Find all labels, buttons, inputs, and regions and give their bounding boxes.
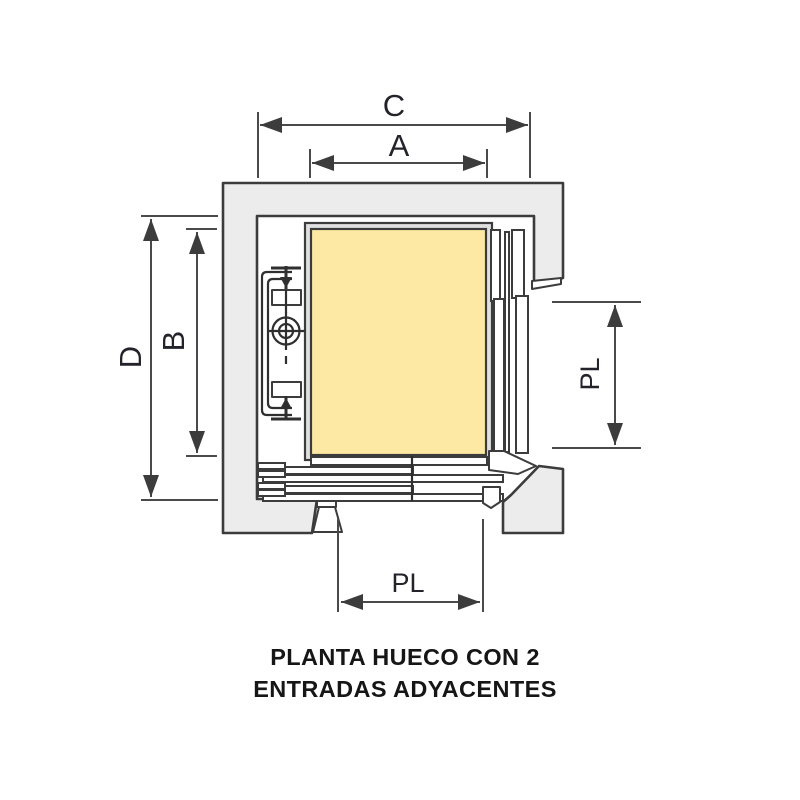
dimension-d: D [113, 216, 218, 500]
cabin-door-sill [311, 457, 487, 465]
dimension-a-label: A [389, 128, 410, 163]
arrowhead-down-icon [189, 431, 205, 453]
door-panel [516, 296, 528, 453]
door-jamb-top-right [532, 278, 561, 289]
guide-rail-assembly [262, 266, 305, 420]
rail-top-head [280, 277, 292, 288]
arrowhead-right-icon [506, 117, 528, 133]
arrowhead-up-icon [189, 232, 205, 254]
arrowhead-left-icon [341, 594, 363, 610]
dimension-c-label: C [383, 88, 405, 123]
bottom-entrance-door [258, 456, 503, 501]
door-panel [263, 494, 503, 501]
door-jamb-corner-b [483, 487, 500, 508]
door-operator-bar [258, 471, 285, 477]
dimension-pl-right: PL [552, 302, 641, 448]
arrowhead-left-icon [312, 155, 334, 171]
arrowhead-down-icon [607, 423, 623, 445]
door-panel [491, 230, 500, 301]
arrowhead-right-icon [463, 155, 485, 171]
door-panel [494, 299, 504, 457]
dimension-pl-right-label: PL [575, 357, 605, 390]
door-panel [263, 475, 503, 482]
arrowhead-right-icon [458, 594, 480, 610]
dimension-b-label: B [156, 331, 191, 352]
door-track [505, 232, 509, 452]
dimension-pl-bottom: PL [338, 519, 483, 612]
drawing-title-line2: ENTRADAS ADYACENTES [0, 673, 800, 705]
drawing-title: PLANTA HUECO CON 2 ENTRADAS ADYACENTES [0, 641, 800, 705]
shaft-wall-corner-block [503, 466, 563, 533]
dimension-pl-bottom-label: PL [391, 568, 424, 598]
rail-bottom-flange [272, 382, 301, 397]
door-panel [512, 230, 524, 298]
dimension-d-label: D [113, 346, 148, 368]
arrowhead-up-icon [143, 219, 159, 241]
drawing-title-line1: PLANTA HUECO CON 2 [0, 641, 800, 673]
door-operator-bar [258, 463, 285, 469]
door-operator-bar [258, 483, 285, 489]
arrowhead-up-icon [607, 305, 623, 327]
dimension-b: B [156, 229, 217, 456]
door-operator-bar [258, 490, 285, 496]
diagram-canvas: C A D B [0, 0, 800, 800]
arrowhead-down-icon [143, 475, 159, 497]
arrowhead-left-icon [260, 117, 282, 133]
cabin [305, 223, 492, 460]
cabin-floor [311, 229, 486, 455]
dimension-a: A [310, 128, 487, 178]
door-jamb-corner-a [489, 451, 536, 474]
